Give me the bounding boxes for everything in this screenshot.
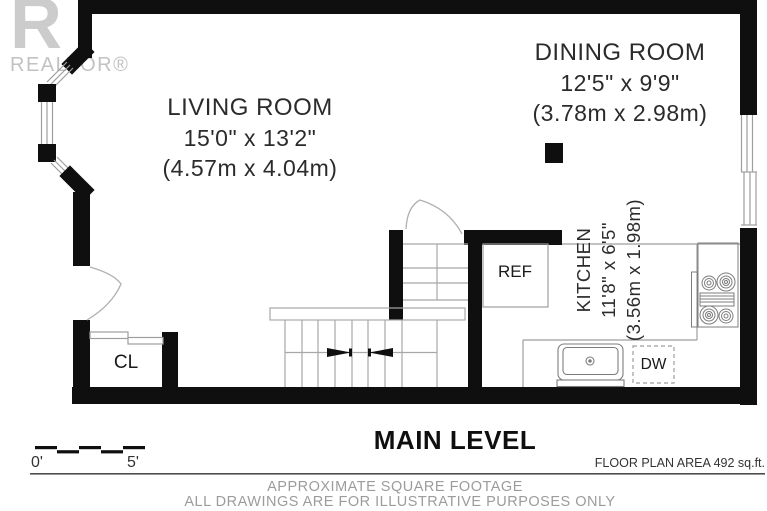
scale-start-label: 0' [31, 454, 43, 472]
stair-arrow-left-icon [369, 348, 393, 357]
stair-arrow-right-tick [349, 349, 352, 357]
living-room-dims-imperial: 15'0" x 13'2" [130, 123, 370, 153]
wall-right-upper [740, 14, 757, 115]
stairs [270, 244, 468, 387]
bay-wall-diagonal-top [72, 52, 84, 64]
sink-icon [557, 344, 624, 387]
bay-corner-post-top [38, 84, 56, 102]
stair-arrow-left-tick [368, 349, 371, 357]
footer-divider [30, 473, 765, 475]
dining-room-name: DINING ROOM [500, 38, 740, 68]
level-title: MAIN LEVEL [300, 425, 610, 456]
stair-upper-treads [403, 244, 468, 300]
disclaimer-line1: APPROXIMATE SQUARE FOOTAGE [95, 479, 695, 495]
floor-plan-canvas: R REALTOR® [0, 0, 767, 511]
floor-plan-area-note: FLOOR PLAN AREA 492 sq.ft. [540, 456, 765, 470]
stair-landing [270, 308, 465, 320]
bay-wall-diagonal-bottom [70, 176, 84, 190]
entry-door-swing-icon [87, 267, 121, 320]
stair-arrow-right-icon [327, 348, 351, 357]
closet-label: CL [90, 352, 162, 374]
living-room-dims-metric: (4.57m x 4.04m) [130, 153, 370, 183]
stove-icon [692, 243, 739, 327]
living-room-name: LIVING ROOM [130, 93, 370, 123]
kitchen-dims-metric: (3.56m x 1.98m) [621, 190, 646, 350]
closet-bifold-door [90, 332, 163, 344]
wall-stair-kitchen-divider [468, 230, 482, 400]
living-room-label: LIVING ROOM 15'0" x 13'2" (4.57m x 4.04m… [130, 93, 370, 183]
dining-room-label: DINING ROOM 12'5" x 9'9" (3.78m x 2.98m) [500, 38, 740, 128]
dining-room-dims-imperial: 12'5" x 9'9" [500, 68, 740, 98]
kitchen-dims-imperial: 11'8" x 6'5" [596, 190, 621, 350]
kitchen-name: KITCHEN [571, 190, 596, 350]
structural-column [545, 143, 563, 163]
wall-left-lower [73, 320, 90, 390]
wall-right-lower [740, 228, 757, 405]
dining-window [741, 115, 757, 225]
refrigerator-label: REF [482, 262, 548, 282]
bay-window [38, 52, 84, 190]
scale-bar [35, 446, 145, 453]
scale-end-label: 5' [127, 454, 139, 472]
wall-left-upper [73, 192, 90, 266]
wall-top [90, 0, 757, 14]
dishwasher-label: DW [633, 356, 674, 374]
dining-room-dims-metric: (3.78m x 2.98m) [500, 98, 740, 128]
bay-window-glass-middle [42, 102, 53, 144]
kitchen-label: KITCHEN 11'8" x 6'5" (3.56m x 1.98m) [571, 190, 649, 350]
wall-stair-left [389, 230, 403, 320]
wall-closet-right [162, 332, 178, 392]
disclaimer-line2: ALL DRAWINGS ARE FOR ILLUSTRATIVE PURPOS… [95, 494, 705, 510]
interior-door-swing-icon [406, 200, 462, 234]
bay-corner-post-bottom [38, 144, 56, 162]
